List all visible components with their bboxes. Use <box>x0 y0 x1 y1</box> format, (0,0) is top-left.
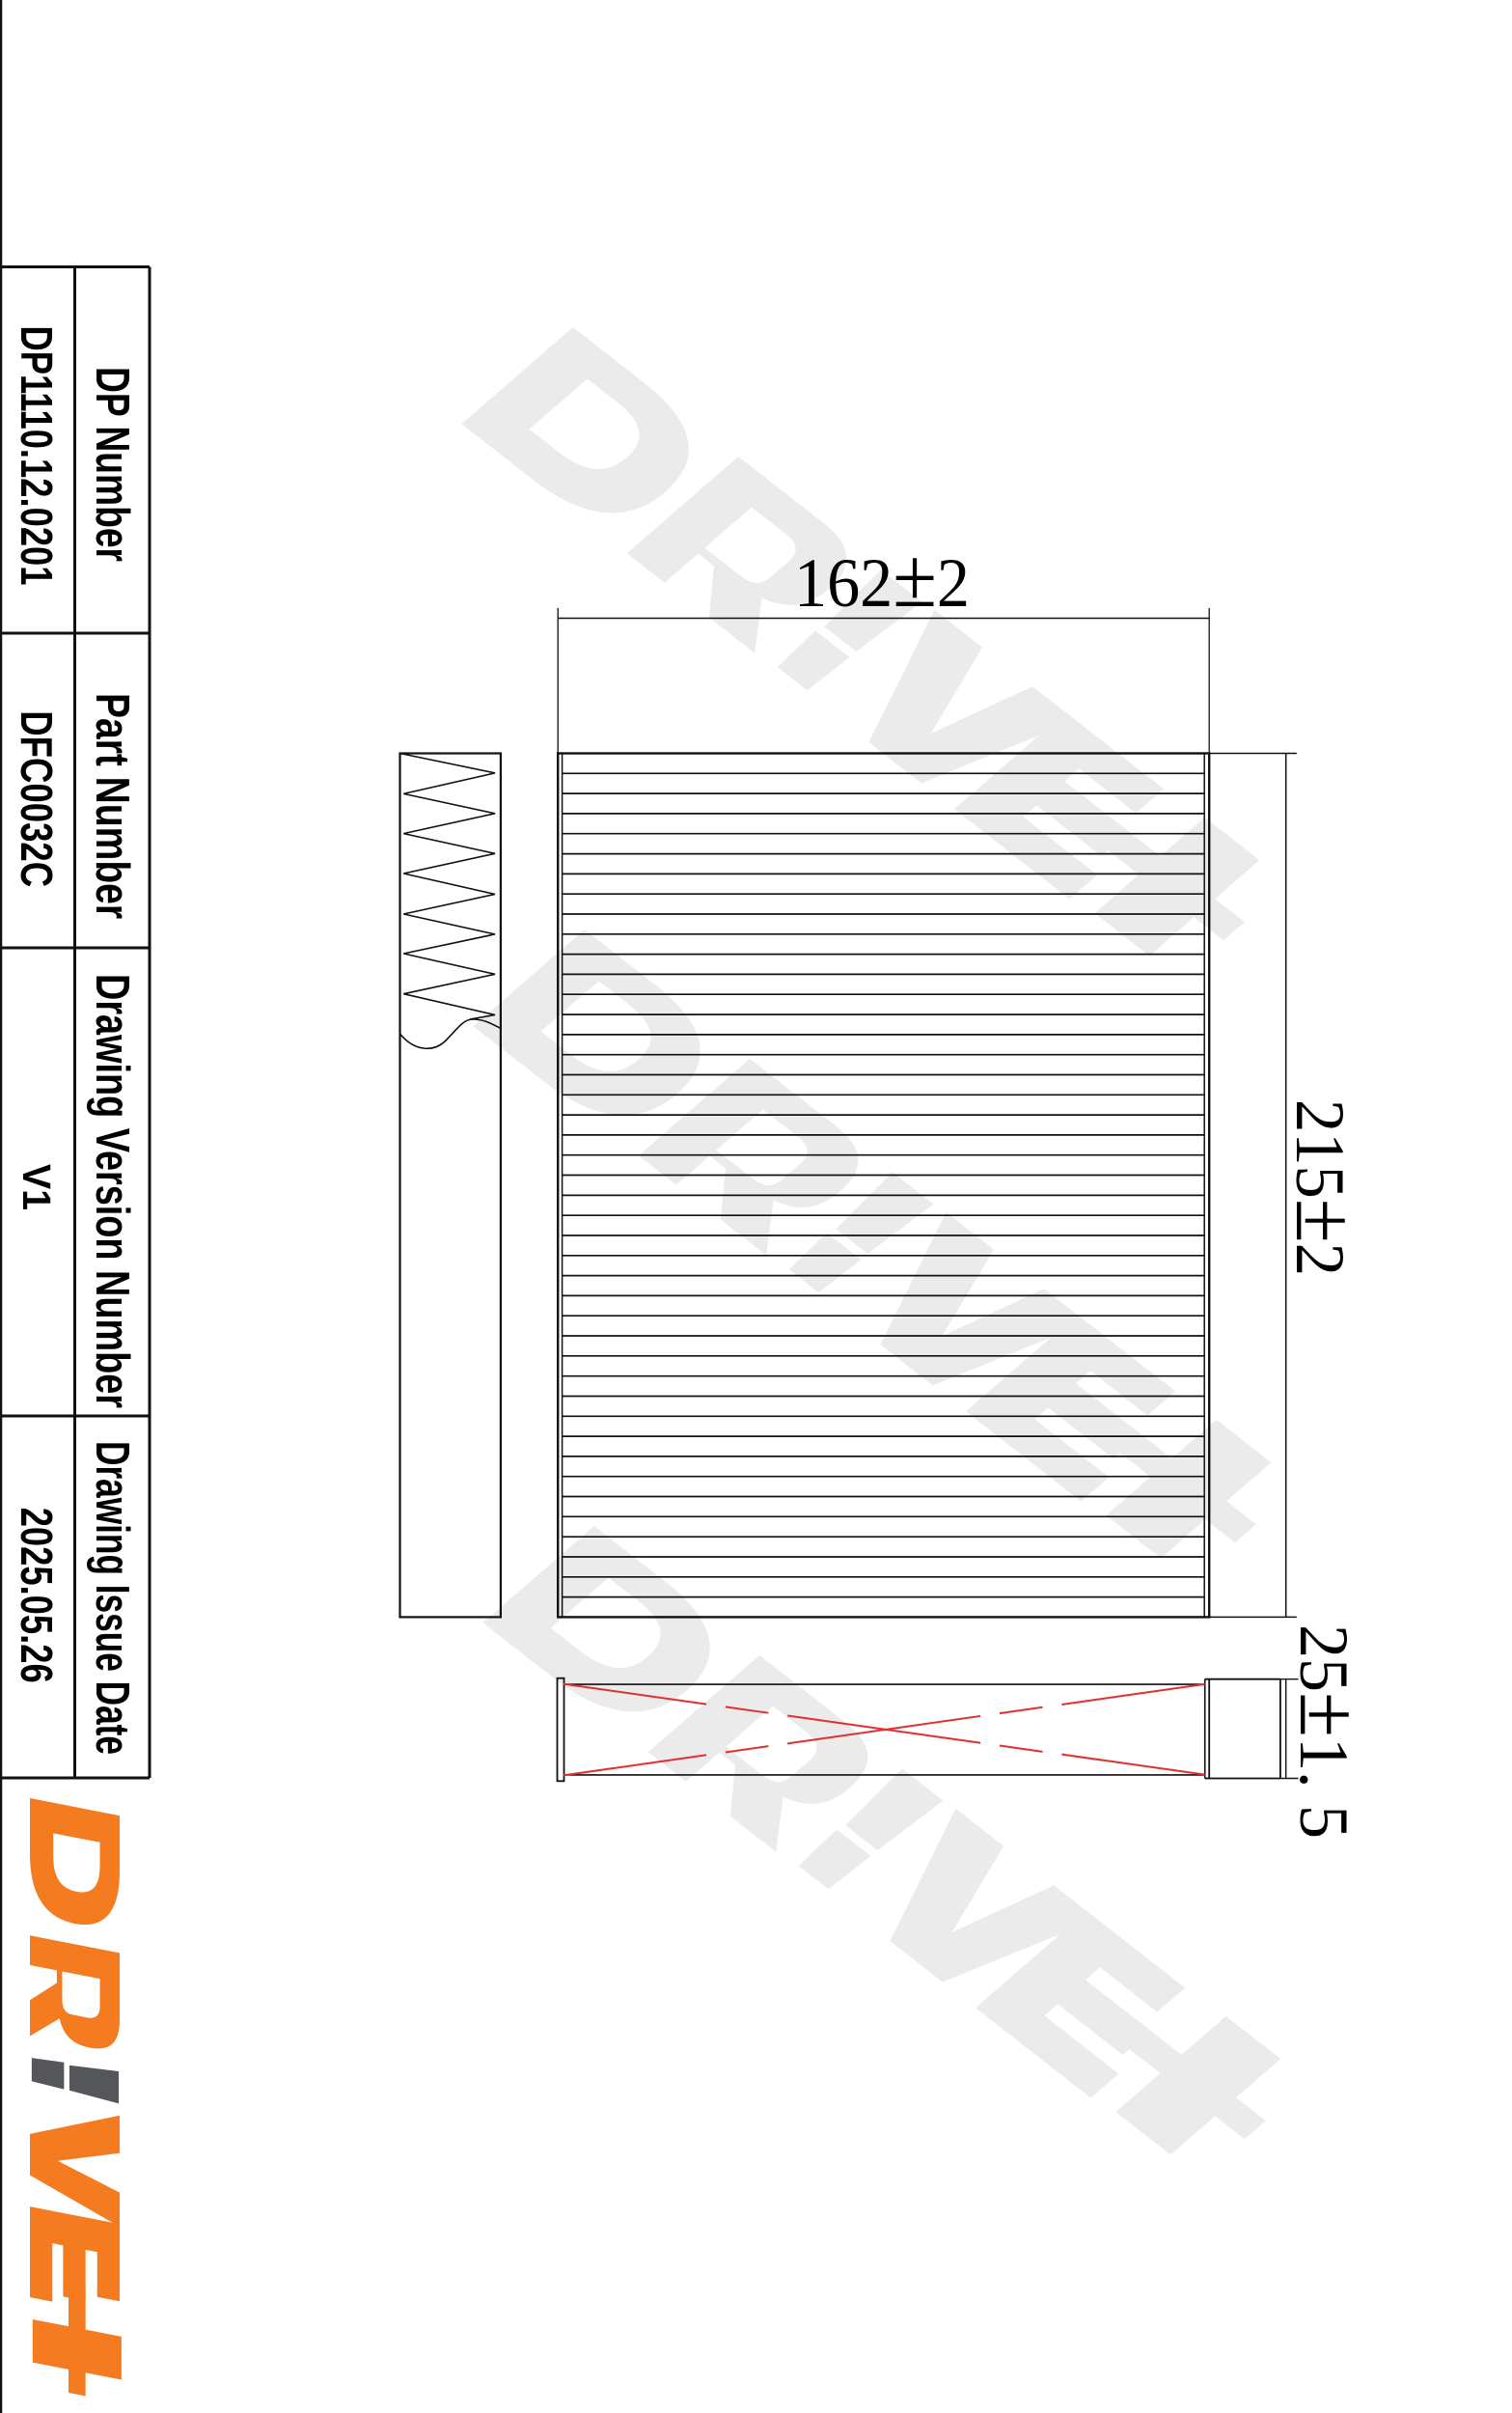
svg-text:162±2: 162±2 <box>794 532 970 625</box>
svg-text:DP1110.12.0201: DP1110.12.0201 <box>12 326 62 586</box>
svg-text:Part Number: Part Number <box>86 693 138 919</box>
svg-text:25±1. 5: 25±1. 5 <box>1281 1624 1375 1839</box>
svg-text:2025.05.26: 2025.05.26 <box>12 1508 62 1683</box>
svg-text:Drawing Issue Date: Drawing Issue Date <box>86 1441 138 1755</box>
svg-text:Drawing Version Number: Drawing Version Number <box>86 974 138 1408</box>
svg-text:215±2: 215±2 <box>1278 1099 1371 1276</box>
svg-text:DFC0032C: DFC0032C <box>12 710 62 887</box>
svg-text:V1: V1 <box>14 1164 59 1210</box>
svg-text:DP Number: DP Number <box>86 367 138 562</box>
